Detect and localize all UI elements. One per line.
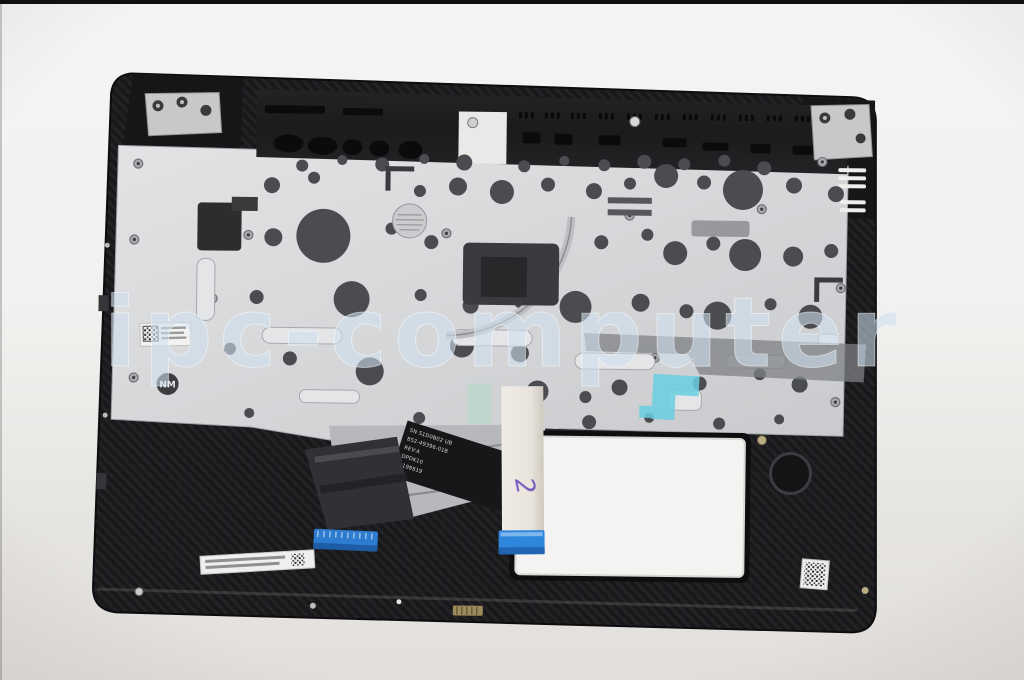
flex-connector-left xyxy=(313,529,378,552)
hinge-bracket-left xyxy=(145,92,223,137)
bottom-right-qr-sticker xyxy=(800,559,829,590)
photo-stage: NM xyxy=(0,0,1024,680)
ipc-computer-watermark: ipc-computer xyxy=(104,277,905,389)
green-tape xyxy=(467,384,491,424)
round-boss xyxy=(770,453,810,493)
palmrest-part-photo: NM xyxy=(0,0,1024,680)
bracket-screw xyxy=(630,117,640,127)
ribbon-connector xyxy=(499,530,545,554)
touchpad-opening xyxy=(509,430,751,583)
certification-stamp xyxy=(392,204,426,238)
touchpad-ribbon: 2 xyxy=(498,386,546,555)
bottom-screw xyxy=(135,588,143,596)
screw-gold xyxy=(757,436,766,445)
gold-connector xyxy=(453,605,483,615)
